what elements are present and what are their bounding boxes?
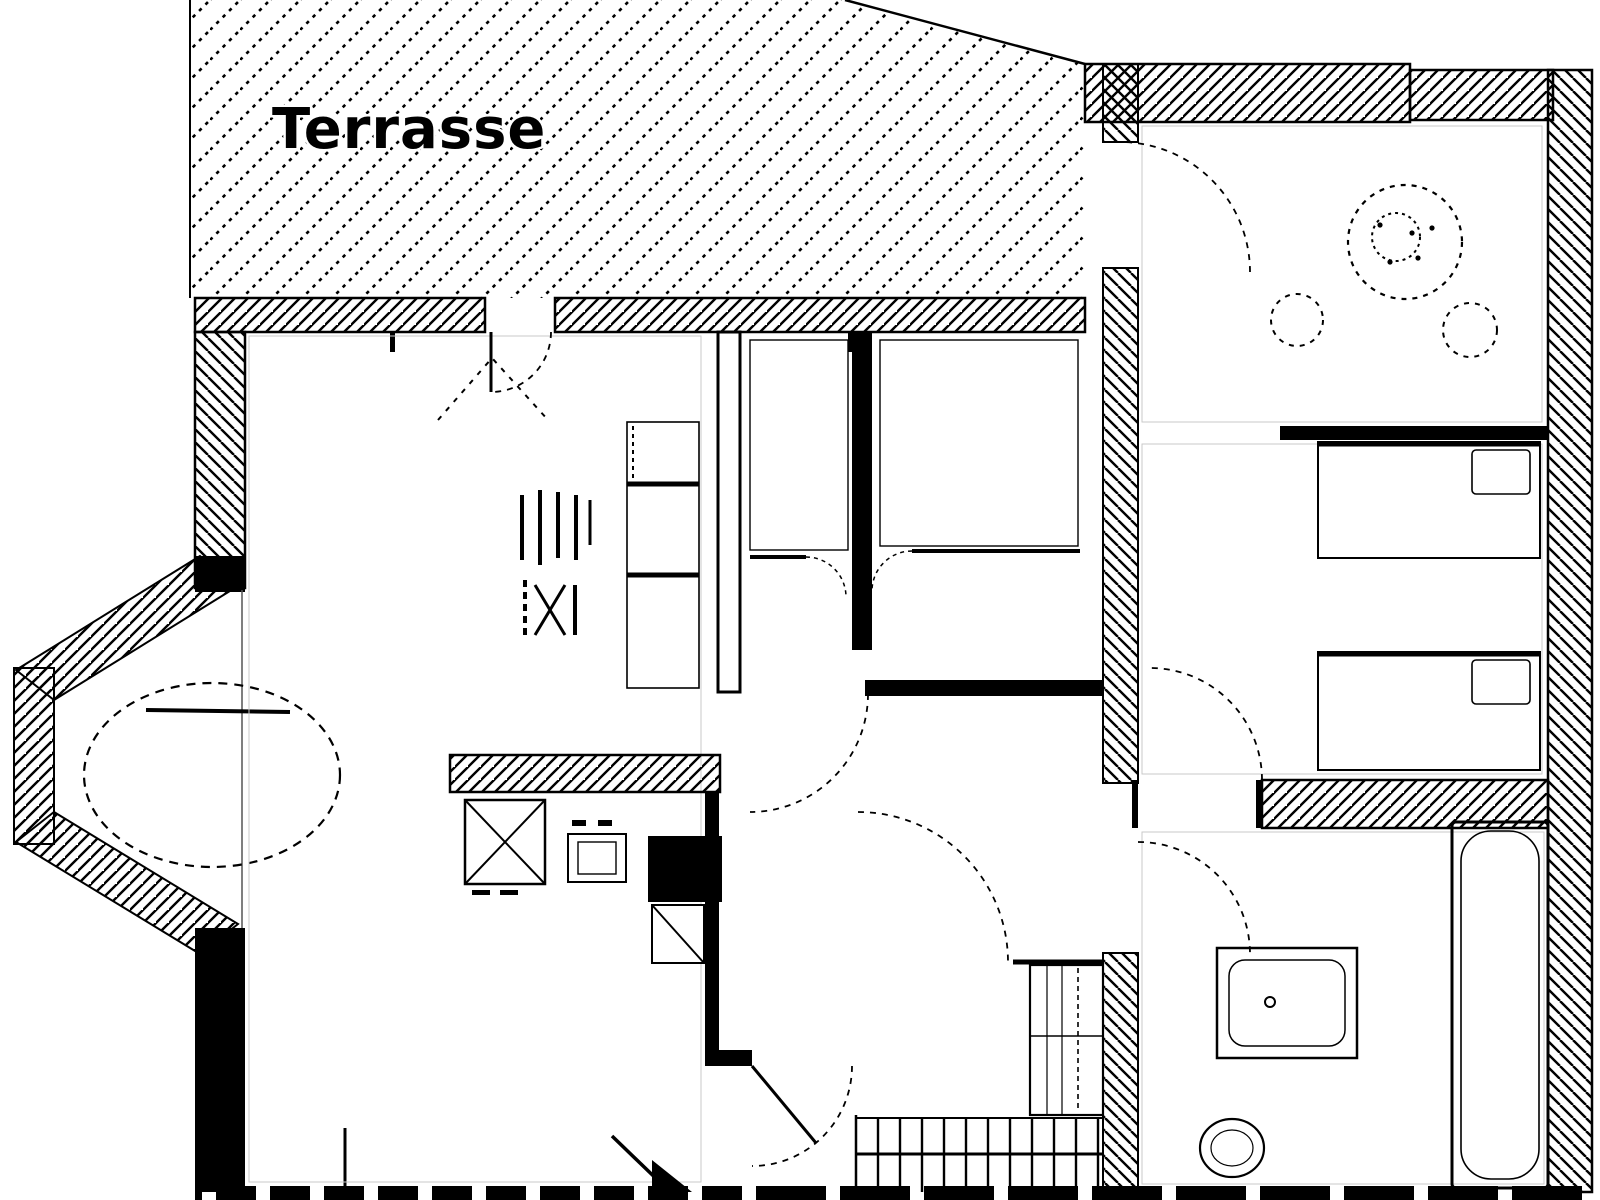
- wall-terrace-front-right: [555, 298, 1085, 332]
- door-arc-bathroom: [1138, 842, 1250, 954]
- terrace: Terrasse: [190, 0, 1085, 298]
- wall-closet-bottom: [865, 680, 1103, 696]
- dining-table: [84, 683, 340, 867]
- shelf-unit: [627, 422, 699, 688]
- bay-window: [14, 556, 340, 954]
- bay-wall-lower: [16, 812, 238, 954]
- floor-plan-page: Terrasse: [0, 0, 1600, 1200]
- kitchen-counter-wall: [450, 755, 720, 792]
- balcony-door: [612, 1136, 692, 1192]
- door-jamb: [1132, 780, 1138, 828]
- stool-1: [1271, 294, 1323, 346]
- bathtub: [1452, 822, 1548, 1188]
- staircase: [856, 1115, 1103, 1192]
- wall-terrace-front-left: [195, 298, 485, 332]
- wall-kitchen-closet: [718, 332, 740, 692]
- hall-wardrobe: [1030, 965, 1103, 1115]
- bed-1: [1318, 442, 1540, 558]
- door-arc-top-room: [1120, 142, 1250, 272]
- wall-right-outer: [1548, 70, 1592, 1192]
- wall-bathroom-left: [1103, 953, 1138, 1192]
- window-band-left: [195, 1186, 705, 1200]
- sink: [568, 820, 626, 882]
- bathroom: [1138, 822, 1548, 1188]
- wall-top-right-b: [1410, 70, 1553, 120]
- kitchen: [450, 422, 722, 963]
- wardrobe-right: [872, 340, 1080, 591]
- wall-closet-divider: [852, 332, 872, 650]
- wall-hall-jog: [705, 1050, 752, 1066]
- closet-room: [750, 340, 1080, 597]
- wall-bedroom-divider: [1280, 426, 1548, 440]
- door-arc-closet-room: [750, 694, 868, 812]
- bottom-band: [195, 1128, 1595, 1200]
- bed-2: [1318, 652, 1540, 770]
- wall-rooms-left-main: [1103, 268, 1138, 783]
- shower: [1217, 948, 1357, 1058]
- floor-plan-drawing: Terrasse: [0, 0, 1600, 1200]
- scan-glyph-marks: [522, 490, 590, 635]
- wall-kitchen-side: [705, 792, 719, 1058]
- washbasin: [1200, 1119, 1264, 1177]
- door-arc-bedroom: [1150, 668, 1262, 780]
- terrace-door-arc: [491, 332, 551, 392]
- wall-living-left: [195, 928, 245, 1192]
- door-arc-hall: [858, 812, 1008, 962]
- living-door-leaf: [752, 1066, 816, 1143]
- stove: [465, 800, 545, 895]
- door-jamb: [1256, 780, 1262, 828]
- door-arc-living: [752, 1066, 852, 1166]
- room-inner-line: [1142, 832, 1544, 1184]
- plant: [1348, 185, 1462, 299]
- wall-terrace-left: [195, 332, 245, 588]
- wardrobe-left: [750, 340, 848, 597]
- room-inner-line: [1142, 126, 1542, 422]
- door-swing-peak: [438, 358, 548, 420]
- terrace-label: Terrasse: [272, 97, 546, 162]
- window-jamb-tick: [390, 332, 395, 352]
- hall: [750, 694, 1103, 1192]
- wall-rooms-left-upper: [1103, 64, 1138, 142]
- bedroom: [1142, 442, 1542, 780]
- top-right-room: [1120, 126, 1542, 422]
- stool-2: [1443, 303, 1497, 357]
